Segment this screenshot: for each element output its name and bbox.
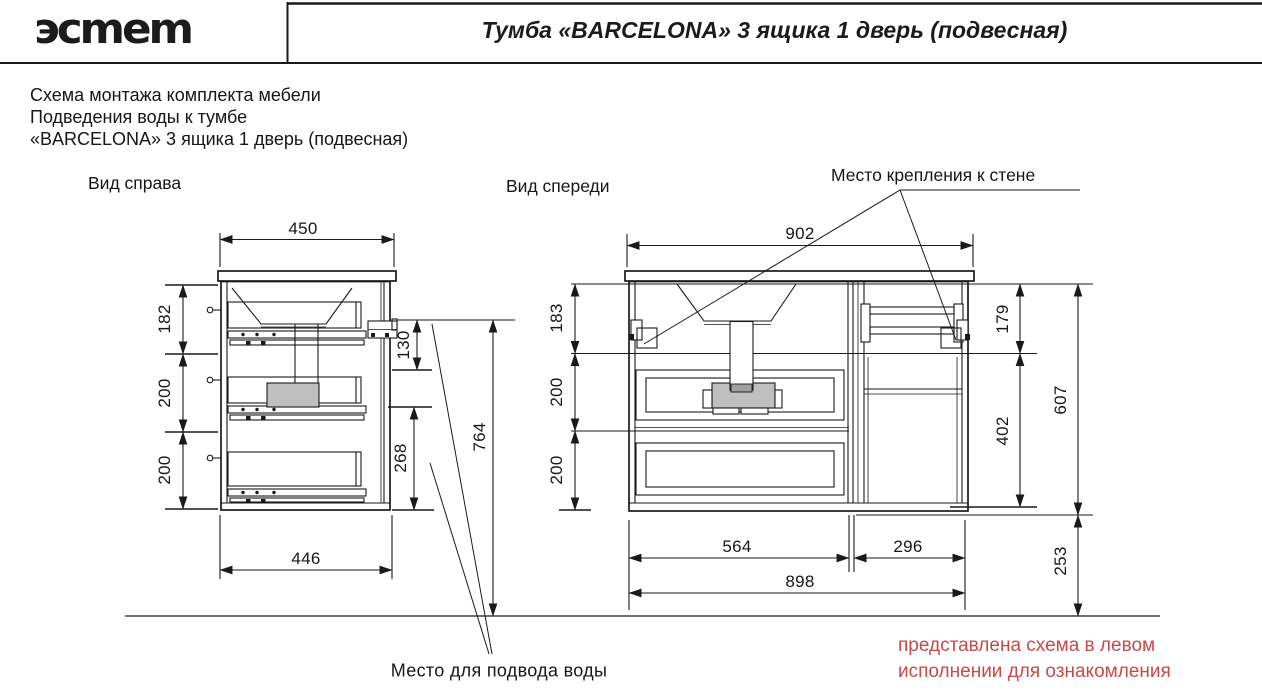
scheme-description-line3: «BARCELONA» 3 ящика 1 дверь (подвесная) [30,128,408,150]
front-siphon [703,322,782,415]
drawing-sheet: эcmem Тумба «BARCELONA» 3 ящика 1 дверь … [0,0,1262,690]
note-line1: представлена схема в левом [898,633,1171,659]
dim-label-564: 564 [722,537,751,557]
dim-label-268: 268 [391,443,411,472]
wall-mount-label: Место крепления к стене [831,165,1035,186]
dim-label-182: 182 [155,304,175,333]
scheme-description: Схема монтажа комплекта мебели Подведени… [30,84,408,150]
dim-label-296: 296 [893,537,922,557]
side-view-drawing [165,233,515,654]
front-view-label: Вид спереди [506,176,610,197]
side-counter-top [218,271,396,281]
front-counter-top [625,271,974,281]
side-siphon [267,324,319,407]
towel-rail [861,304,963,342]
side-basin [232,288,352,327]
dim-label-183: 183 [547,303,567,332]
dim-label-253: 253 [1051,546,1071,575]
front-drawer-2 [636,443,844,495]
side-view-dimensions [165,233,493,616]
dim-label-200-front-b: 200 [547,455,567,484]
brand-logo: эcmem [34,4,191,53]
dim-label-446: 446 [291,549,320,569]
scheme-description-line2: Подведения воды к тумбе [30,106,408,128]
dim-label-130: 130 [394,330,414,359]
dim-label-200-side-a: 200 [155,378,175,407]
dim-label-450: 450 [288,219,317,239]
dim-label-764: 764 [470,422,490,451]
sheet-title: Тумба «BARCELONA» 3 ящика 1 дверь (подве… [287,17,1262,44]
dim-label-200-front-a: 200 [547,377,567,406]
front-view-drawing [559,190,1093,616]
water-supply-leader [430,324,492,654]
front-door [864,357,962,503]
water-supply-label: Место для подвода воды [391,661,607,682]
front-body [629,282,968,512]
dim-label-902: 902 [785,224,814,244]
dim-label-607: 607 [1051,385,1071,414]
front-basin [677,284,796,325]
side-drawer-3 [228,452,366,504]
note-text: представлена схема в левом исполнении дл… [898,633,1171,685]
dim-label-179: 179 [993,304,1013,333]
side-view-label: Вид справа [88,173,181,194]
dim-label-200-side-b: 200 [155,455,175,484]
side-knobs [207,307,221,461]
dim-label-898: 898 [785,572,814,592]
front-wall-bracket-left [629,320,657,348]
note-line2: исполнении для ознакомления [898,659,1171,685]
dim-label-402: 402 [993,416,1013,445]
scheme-description-line1: Схема монтажа комплекта мебели [30,84,408,106]
